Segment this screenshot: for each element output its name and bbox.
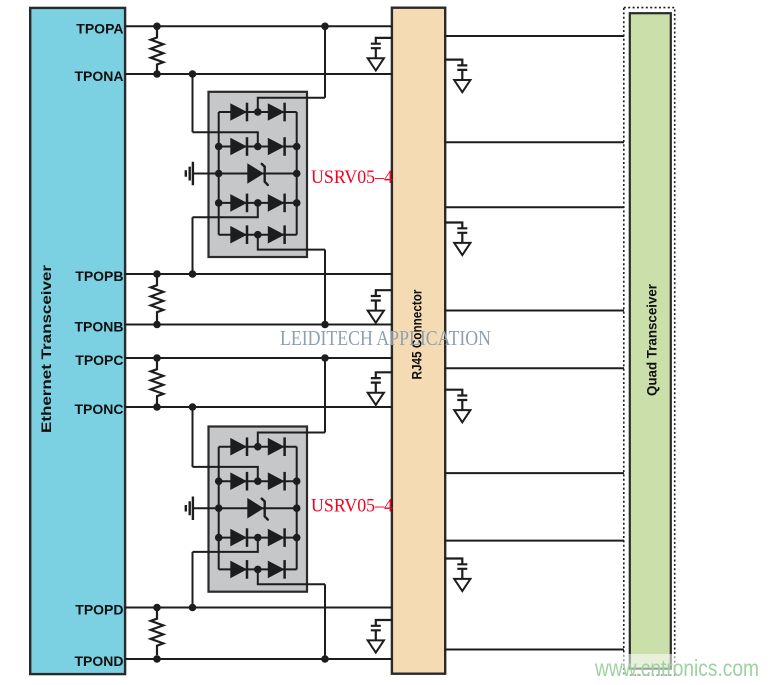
svg-text:Ethernet Transceiver: Ethernet Transceiver <box>39 264 54 433</box>
svg-text:USRV05–4: USRV05–4 <box>311 167 393 188</box>
svg-text:TPOPA: TPOPA <box>76 21 123 37</box>
svg-text:Quad Transceiver: Quad Transceiver <box>645 283 660 396</box>
svg-text:TPOPB: TPOPB <box>75 268 123 284</box>
svg-text:USRV05–4: USRV05–4 <box>311 496 393 517</box>
svg-text:TPONB: TPONB <box>75 319 124 335</box>
svg-text:TPONC: TPONC <box>75 401 124 417</box>
svg-text:www.cntronics.com: www.cntronics.com <box>594 655 759 681</box>
svg-text:LEIDITECH APPLICATION: LEIDITECH APPLICATION <box>280 326 491 350</box>
svg-text:TPOPC: TPOPC <box>75 352 123 368</box>
svg-text:TPOPD: TPOPD <box>75 602 123 618</box>
svg-text:TPOND: TPOND <box>75 653 124 669</box>
svg-text:TPONA: TPONA <box>75 68 124 84</box>
